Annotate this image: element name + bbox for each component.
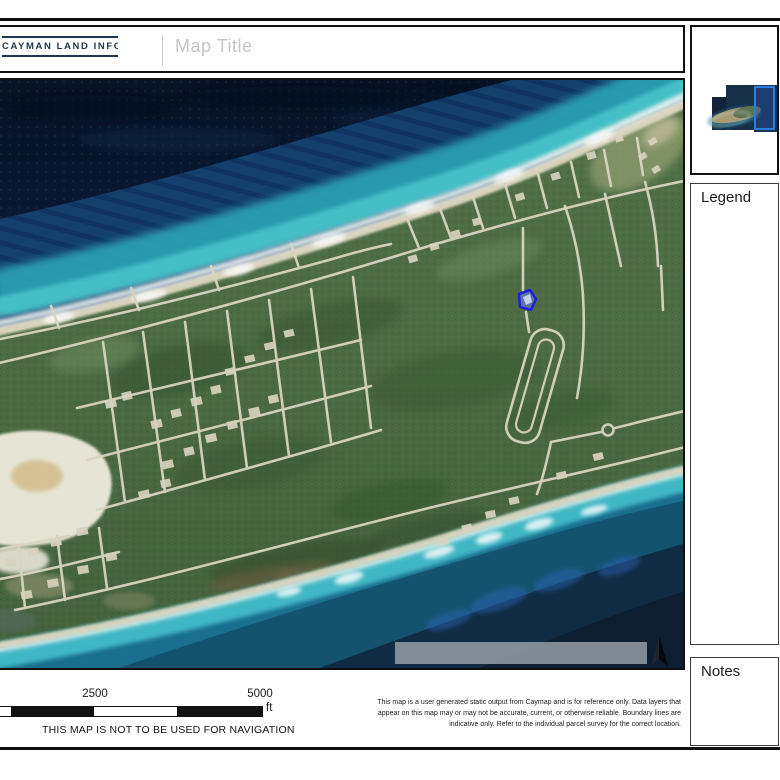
page-frame-top [0, 18, 780, 21]
map-disclaimer: This map is a user generated static outp… [369, 697, 681, 731]
map-viewport [0, 78, 685, 670]
notes-panel: Notes [690, 657, 779, 746]
navigation-warning: THIS MAP IS NOT TO BE USED FOR NAVIGATIO… [42, 724, 295, 736]
map-title: Map Title [175, 36, 253, 57]
scale-unit: ft [266, 702, 272, 714]
scale-bar [0, 706, 263, 717]
satellite-map-canvas [0, 80, 683, 668]
legend-panel: Legend [690, 183, 779, 645]
page-frame-bottom [0, 747, 780, 750]
header-bar: CAYMAN LAND INFO Map Title [0, 25, 685, 73]
scale-label-5000: 5000 [235, 688, 285, 700]
overview-extent-box [754, 86, 775, 130]
logo-text: CAYMAN LAND INFO [2, 38, 118, 55]
legend-title: Legend [701, 189, 751, 206]
cayman-land-info-logo: CAYMAN LAND INFO [2, 36, 118, 57]
logo-rule-bottom [2, 55, 118, 57]
scale-label-2500: 2500 [70, 688, 120, 700]
overview-map-panel [690, 25, 779, 175]
notes-title: Notes [701, 663, 740, 680]
attribution-strip [395, 642, 647, 664]
map-export-page: CAYMAN LAND INFO Map Title [0, 0, 780, 780]
header-divider [162, 35, 163, 66]
